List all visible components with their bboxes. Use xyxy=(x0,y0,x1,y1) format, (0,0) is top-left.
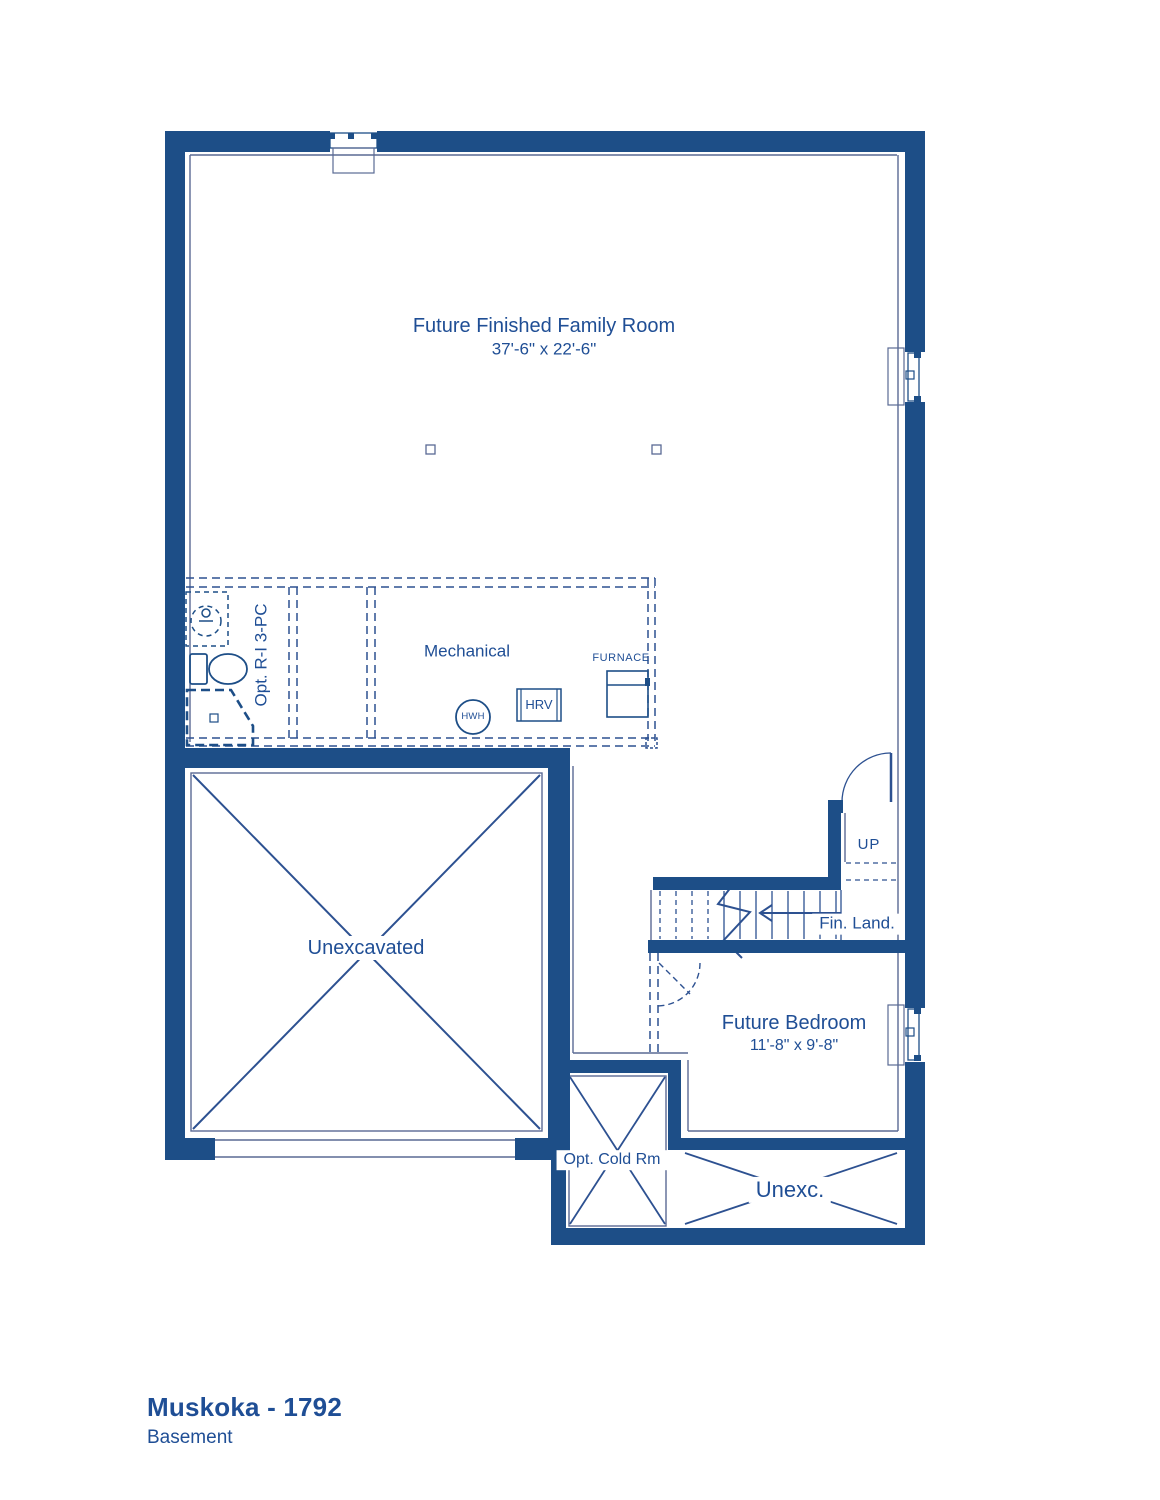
title-block: Muskoka - 1792 Basement xyxy=(147,1392,342,1449)
mechanical-label: Mechanical xyxy=(424,643,510,662)
cold-room-label: Opt. Cold Rm xyxy=(557,1150,668,1170)
hwh-label: HWH xyxy=(461,712,484,722)
furnace-label: FURNACE xyxy=(592,652,649,664)
plan-floor-label: Basement xyxy=(147,1427,342,1449)
top-wall-window xyxy=(330,130,377,173)
finished-landing-label: Fin. Land. xyxy=(812,914,902,935)
exterior-walls xyxy=(165,131,925,1245)
plan-title: Muskoka - 1792 xyxy=(147,1392,342,1423)
furnace-unit xyxy=(607,671,650,717)
structural-posts xyxy=(426,445,661,454)
floor-plan-page: Future Finished Family Room 37'-6" x 22'… xyxy=(0,0,1160,1500)
bedroom-door-swing xyxy=(658,963,700,1006)
unexc-small-label: Unexc. xyxy=(749,1177,831,1203)
future-bedroom-dims: 11'-8" x 9'-8" xyxy=(750,1037,838,1055)
bedroom-window xyxy=(888,1005,925,1065)
unexcavated-label: Unexcavated xyxy=(301,936,432,960)
family-room-label: Future Finished Family Room xyxy=(413,315,675,337)
bedroom-future-wall xyxy=(650,953,658,1053)
hrv-label: HRV xyxy=(525,698,552,712)
toilet-fixture xyxy=(190,654,247,684)
sink-fixture xyxy=(186,592,228,646)
up-label: UP xyxy=(858,837,881,854)
future-bedroom-label: Future Bedroom xyxy=(722,1012,867,1034)
door-swing xyxy=(842,753,891,802)
family-room-dims: 37'-6" x 22'-6" xyxy=(492,341,597,360)
bath-rough-in-label: Opt. R-I 3-PC xyxy=(253,604,272,707)
shower-fixture xyxy=(187,690,253,745)
floor-plan-drawing xyxy=(0,0,1160,1500)
family-room-window xyxy=(888,348,925,405)
